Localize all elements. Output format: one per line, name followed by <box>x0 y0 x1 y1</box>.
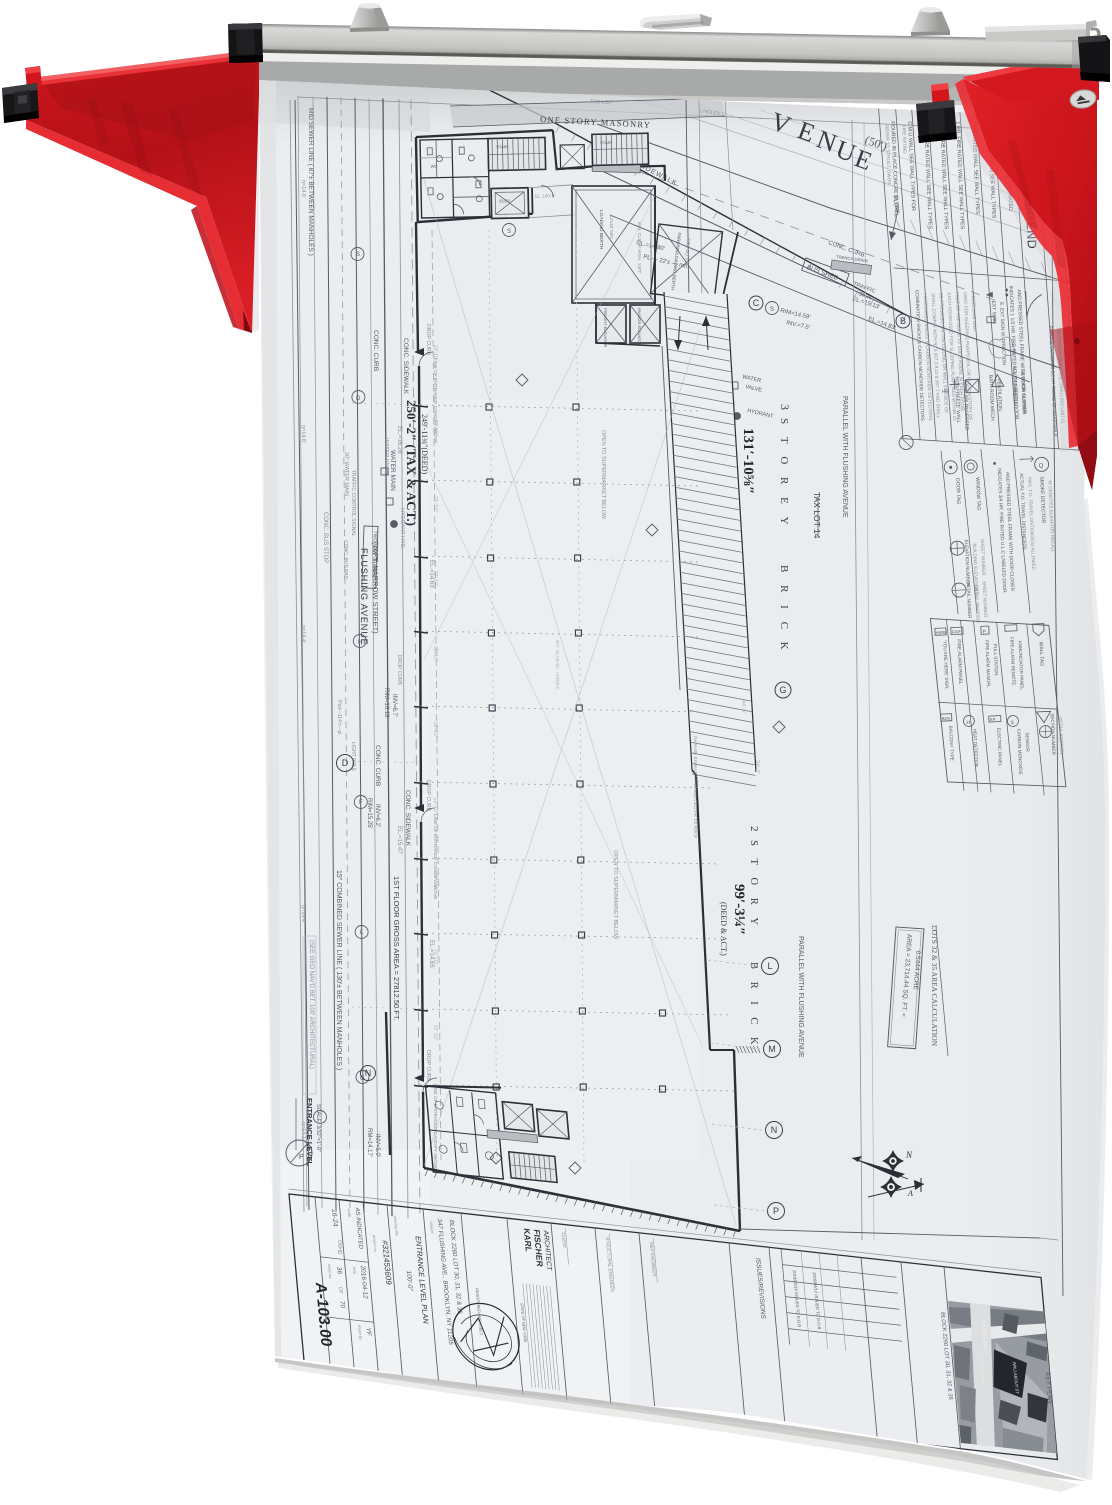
svg-text:249′-11¾″(DEED): 249′-11¾″(DEED) <box>420 414 429 474</box>
svg-text:CONC. CURB: CONC. CURB <box>372 330 379 371</box>
svg-text:22′-10″: 22′-10″ <box>432 420 438 436</box>
svg-text:MID SEWER LINE ( 87′± BETWEEN: MID SEWER LINE ( 87′± BETWEEN MANHOLES ) <box>307 108 314 256</box>
svg-text:S T O R E Y: S T O R E Y <box>778 418 790 530</box>
svg-text:22′-10″: 22′-10″ <box>432 345 438 361</box>
svg-text:OVHD: OVHD <box>336 1240 342 1255</box>
svg-text:OPEN TO SUPERMARKET BELOW: OPEN TO SUPERMARKET BELOW <box>600 430 606 520</box>
svg-text:date: date <box>352 1266 357 1274</box>
svg-text:22′-10″: 22′-10″ <box>432 873 438 889</box>
svg-text:CONC. CURB: CONC. CURB <box>374 745 381 786</box>
svg-text:2: 2 <box>748 826 760 832</box>
svg-text:S: S <box>507 229 511 235</box>
svg-text:PASSGR ELEVATOR: PASSGR ELEVATOR <box>637 308 642 346</box>
svg-text:HERE: HERE <box>935 630 947 636</box>
svg-text:DOOR TAG: DOOR TAG <box>954 478 961 505</box>
svg-text:S: S <box>770 307 774 313</box>
svg-text:G: G <box>779 685 786 695</box>
svg-text:WT. SLAB EL. VARIES: WT. SLAB EL. VARIES <box>554 640 560 689</box>
svg-text:H: H <box>966 720 970 726</box>
svg-text:DROP CURB: DROP CURB <box>425 324 431 356</box>
svg-text:CONC. BUS STOP: CONC. BUS STOP <box>322 512 328 563</box>
svg-text:INV=6.7′: INV=6.7′ <box>391 694 397 718</box>
svg-text:15″ COMBINED SEWER LINE ( 130′: 15″ COMBINED SEWER LINE ( 130′± BETWEEN … <box>335 870 342 1070</box>
svg-text:36: 36 <box>335 1266 343 1274</box>
svg-text:INV=6.2′: INV=6.2′ <box>374 804 380 828</box>
svg-text:Q: Q <box>1039 463 1044 469</box>
svg-text:STAIR: STAIR <box>600 140 612 145</box>
svg-text:B: B <box>900 316 906 326</box>
svg-text:YF: YF <box>364 1327 372 1336</box>
svg-text:η=14.6′: η=14.6′ <box>300 180 306 198</box>
svg-text:70: 70 <box>338 1300 346 1308</box>
svg-text:OPEN TO SUPERMARKET BELOW: OPEN TO SUPERMARKET BELOW <box>612 850 618 940</box>
svg-text:1ST FLOOR GROSS AREA = 27812.5: 1ST FLOOR GROSS AREA = 27812.50 FT. <box>392 876 401 1021</box>
svg-text:EL. 100′-0″: EL. 100′-0″ <box>535 193 556 198</box>
svg-text:F: F <box>359 800 363 806</box>
svg-text:DROP CURB: DROP CURB <box>425 780 431 812</box>
svg-text:22′-10″: 22′-10″ <box>432 571 438 587</box>
svg-text:TRAFFIC CONTROL SIGNAL: TRAFFIC CONTROL SIGNAL <box>350 470 356 537</box>
svg-text:GARAGE EXHAUST FAN SUB CELLAR: GARAGE EXHAUST FAN SUB CELLAR TO ROOF <box>693 736 698 839</box>
svg-text:N: N <box>365 1068 372 1078</box>
svg-text:20″ WATER MAIN: 20″ WATER MAIN <box>343 452 349 496</box>
svg-text:DROP CURB: DROP CURB <box>425 1050 431 1082</box>
svg-text:PARALLEL WITH FLUSHING AVENUE: PARALLEL WITH FLUSHING AVENUE <box>797 936 804 1058</box>
svg-text:scale: scale <box>347 1208 352 1217</box>
svg-text:250′-2″ (TAX & ACT.): 250′-2″ (TAX & ACT.) <box>404 400 419 526</box>
svg-text:3: 3 <box>778 404 792 410</box>
svg-text:EXT SIGN: EXT SIGN <box>990 300 997 324</box>
svg-text:FLUSHING AVENUE: FLUSHING AVENUE <box>359 548 369 646</box>
svg-text:RM=14.17′: RM=14.17′ <box>366 1128 372 1158</box>
svg-text:η=14.4′: η=14.4′ <box>300 905 306 923</box>
svg-text:OF: OF <box>337 1286 344 1294</box>
svg-text:EP: EP <box>990 717 996 722</box>
svg-text:WC: WC <box>431 164 438 169</box>
svg-text:B R I C K: B R I C K <box>778 565 790 655</box>
svg-text:CONC. BUS PAD: CONC. BUS PAD <box>342 540 348 579</box>
svg-text:η=14.6′: η=14.6′ <box>300 425 306 443</box>
svg-text:TAX LOT 14: TAX LOT 14 <box>812 492 822 539</box>
svg-text:INV=5.0′: INV=5.0′ <box>374 1134 380 1158</box>
svg-text:PARALLEL WITH FLUSHING AVENUE: PARALLEL WITH FLUSHING AVENUE <box>841 396 848 518</box>
svg-text:22′-10″: 22′-10″ <box>432 722 438 738</box>
svg-text:FAP: FAP <box>952 629 961 634</box>
svg-text:(SEE GEO NAV′D BET. 100′ ARCHI: (SEE GEO NAV′D BET. 100′ ARCHITECTURAL) <box>308 940 314 1069</box>
svg-text:22′-10″: 22′-10″ <box>432 646 438 662</box>
svg-text:34′-2″: 34′-2″ <box>754 760 760 774</box>
svg-text:Ped—114′±—pl.: Ped—114′±—pl. <box>336 700 342 736</box>
svg-text:EL.=15.47′: EL.=15.47′ <box>396 826 402 856</box>
svg-text:HYDRANT HYD.: HYDRANT HYD. <box>399 508 405 550</box>
svg-text:N: N <box>905 1150 913 1160</box>
svg-text:P: P <box>773 1206 779 1216</box>
svg-text:131′-10⅝″: 131′-10⅝″ <box>740 428 756 494</box>
svg-text:L: L <box>767 961 772 971</box>
svg-text:WATER MAIN: WATER MAIN <box>389 450 396 491</box>
svg-text:TAX LOT: TAX LOT <box>590 99 613 106</box>
svg-text:S: S <box>356 252 360 258</box>
svg-text:22′-10″: 22′-10″ <box>432 1025 438 1041</box>
svg-text:DROP CURB: DROP CURB <box>396 655 402 686</box>
svg-text:ELEV.: ELEV. <box>499 198 511 203</box>
svg-text:CONC. SIDEWALK: CONC. SIDEWALK <box>402 338 409 395</box>
svg-text:22′-10″: 22′-10″ <box>432 798 438 814</box>
svg-text:CONC. SIDEWALK: CONC. SIDEWALK <box>404 790 411 847</box>
svg-text:D: D <box>356 396 361 402</box>
svg-text:η=14.4′: η=14.4′ <box>300 625 306 643</box>
svg-text:44′-6″: 44′-6″ <box>740 700 746 714</box>
svg-text:S T O R Y: S T O R Y <box>748 840 759 930</box>
svg-text:HB: HB <box>942 389 948 394</box>
svg-text:η=14.14′: η=14.14′ <box>300 1122 306 1143</box>
svg-text:P: P <box>299 1154 304 1161</box>
svg-text:RIM=16.18′: RIM=16.18′ <box>383 688 389 720</box>
svg-text:STAIR: STAIR <box>496 144 508 149</box>
svg-text:C: C <box>753 298 760 308</box>
svg-text:99′-3¼″: 99′-3¼″ <box>731 884 747 935</box>
svg-text:WALL TAG: WALL TAG <box>1038 642 1045 667</box>
svg-text:N: N <box>771 1125 778 1135</box>
svg-text:22′-10″: 22′-10″ <box>432 949 438 965</box>
svg-text:22′-10″: 22′-10″ <box>432 496 438 512</box>
svg-text:M: M <box>768 1044 776 1054</box>
svg-text:B R I C K: B R I C K <box>748 962 759 1050</box>
svg-text:FREIGHT ELEVATOR: FREIGHT ELEVATOR <box>603 308 608 347</box>
svg-text:D: D <box>342 758 349 768</box>
svg-text:12′x40′ MIN.: 12′x40′ MIN. <box>609 215 614 240</box>
svg-text:(DEED & ACT.): (DEED & ACT.) <box>719 902 728 956</box>
svg-text:BOX: BOX <box>942 716 951 721</box>
svg-text:RIM=15.25′: RIM=15.25′ <box>366 798 372 830</box>
svg-text:A: A <box>907 1189 913 1198</box>
svg-text:SENSOR: SENSOR <box>1024 732 1030 752</box>
svg-text:EL.=16.28′: EL.=16.28′ <box>396 426 402 456</box>
svg-text:LOADING BERTH: LOADING BERTH <box>598 210 604 250</box>
